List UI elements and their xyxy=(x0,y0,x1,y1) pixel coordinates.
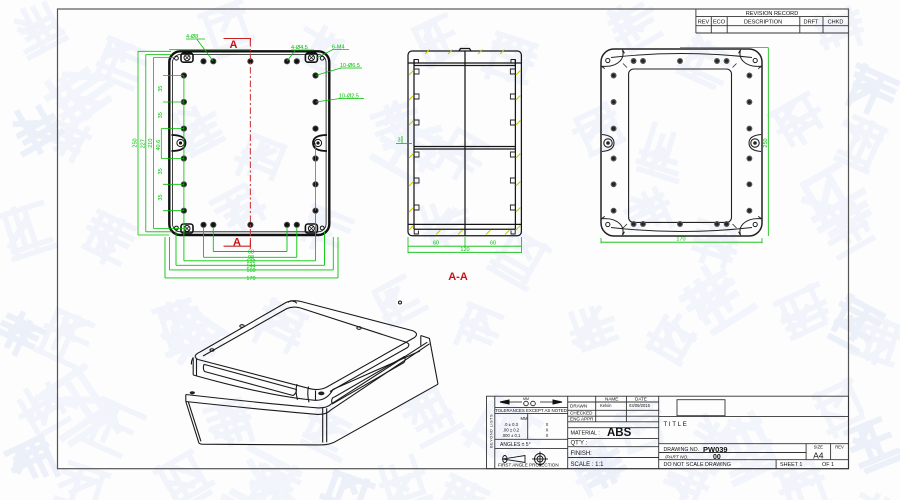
svg-text:3: 3 xyxy=(397,138,400,144)
svg-text:MM: MM xyxy=(521,416,528,421)
svg-text:NAME: NAME xyxy=(605,397,618,402)
svg-text:160: 160 xyxy=(246,268,255,274)
svg-text:.000 ± 0.1: .000 ± 0.1 xyxy=(502,433,521,438)
svg-text:60: 60 xyxy=(433,241,439,247)
svg-text:60: 60 xyxy=(490,241,496,247)
svg-text:REVISION RECORD: REVISION RECORD xyxy=(746,11,799,17)
svg-text:FINISH:: FINISH: xyxy=(571,451,593,457)
svg-text:MM: MM xyxy=(523,397,529,401)
svg-text:REV: REV xyxy=(698,20,710,26)
svg-text:ENG APPR: ENG APPR xyxy=(570,417,594,422)
svg-text:A4: A4 xyxy=(813,451,824,461)
svg-text:ECO: ECO xyxy=(713,20,726,26)
svg-text:CHKD: CHKD xyxy=(828,20,844,26)
svg-text:REV: REV xyxy=(835,445,844,450)
svg-text:210: 210 xyxy=(148,139,154,148)
svg-text:DATE: DATE xyxy=(635,397,647,402)
svg-text:A: A xyxy=(230,39,238,51)
svg-text:227: 227 xyxy=(140,139,146,148)
svg-text:SHEET 1: SHEET 1 xyxy=(780,462,802,468)
svg-text:/PART NO.: /PART NO. xyxy=(664,454,689,460)
svg-text:A-A: A-A xyxy=(448,271,468,283)
svg-text:X: X xyxy=(546,422,549,427)
svg-text:BEYOND LISTS: BEYOND LISTS xyxy=(488,414,493,448)
svg-text:35: 35 xyxy=(158,168,164,174)
svg-text:Kelvin: Kelvin xyxy=(600,403,612,408)
svg-text:250: 250 xyxy=(763,138,769,147)
svg-text:ABS: ABS xyxy=(607,427,632,439)
svg-text:QT'Y :: QT'Y : xyxy=(571,441,588,447)
svg-text:A: A xyxy=(233,237,241,249)
svg-text:40.6: 40.6 xyxy=(156,140,162,151)
svg-text:PW039: PW039 xyxy=(703,445,728,454)
svg-text:DESCRIPTION: DESCRIPTION xyxy=(744,20,782,26)
svg-text:250: 250 xyxy=(133,138,139,147)
svg-text:DO NOT SCALE DRAWING: DO NOT SCALE DRAWING xyxy=(664,462,731,468)
svg-text:SIZE: SIZE xyxy=(814,445,824,450)
svg-text:FIRST ANGLE PROJECTION: FIRST ANGLE PROJECTION xyxy=(498,463,559,468)
svg-text:170: 170 xyxy=(246,276,255,282)
svg-text:35: 35 xyxy=(158,194,164,200)
svg-text:.00 ± 0.2: .00 ± 0.2 xyxy=(503,428,520,433)
svg-text:SCALE : 1:1: SCALE : 1:1 xyxy=(571,462,605,468)
svg-text:OF 1: OF 1 xyxy=(822,462,834,468)
svg-text:DRFT: DRFT xyxy=(804,20,819,26)
svg-text:120: 120 xyxy=(460,247,469,253)
svg-text:35: 35 xyxy=(158,112,164,118)
svg-text:DRAWING NO.: DRAWING NO. xyxy=(664,447,700,453)
svg-text:03/09/2015: 03/09/2015 xyxy=(629,403,651,408)
svg-text:X: X xyxy=(546,433,549,438)
svg-text:35: 35 xyxy=(158,86,164,92)
svg-text:TITLE: TITLE xyxy=(664,421,689,428)
svg-text:.0 ± 0.3: .0 ± 0.3 xyxy=(504,422,519,427)
svg-text:170: 170 xyxy=(676,237,685,243)
svg-text:TOLERANCES EXCEPT AS NOTED: TOLERANCES EXCEPT AS NOTED xyxy=(495,408,567,413)
svg-text:00: 00 xyxy=(713,454,721,461)
svg-text:CHECKED: CHECKED xyxy=(570,411,593,416)
svg-text:X: X xyxy=(546,428,549,433)
svg-text:ANGLES ± 5°: ANGLES ± 5° xyxy=(500,442,531,448)
svg-text:DRAWN: DRAWN xyxy=(570,404,587,409)
svg-text:MATERIAL :: MATERIAL : xyxy=(571,431,600,437)
